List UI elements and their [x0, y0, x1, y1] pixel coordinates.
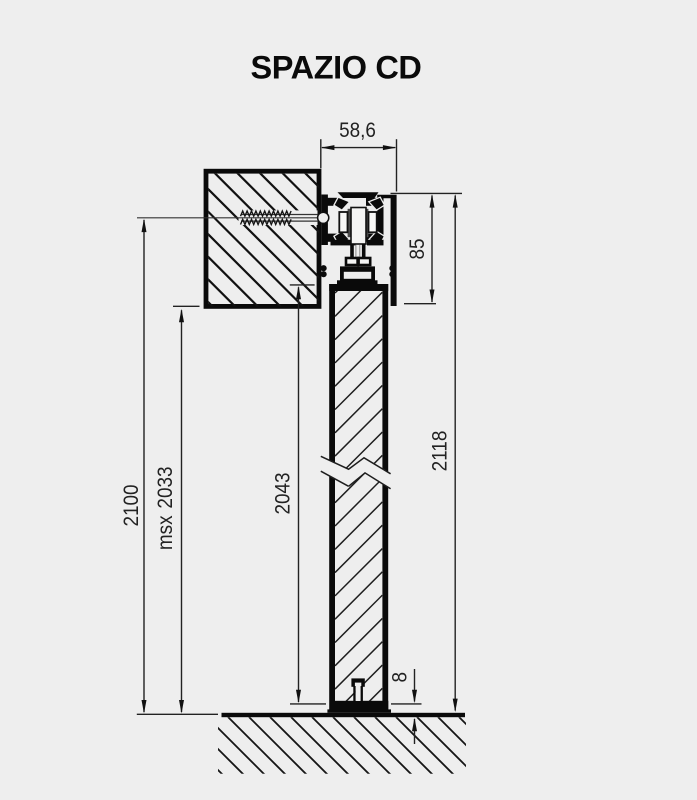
svg-text:8: 8 [388, 672, 411, 683]
svg-text:msx 2033: msx 2033 [154, 466, 177, 550]
svg-text:2100: 2100 [120, 484, 143, 526]
svg-text:85: 85 [406, 238, 429, 259]
svg-text:SPAZIO CD: SPAZIO CD [251, 50, 422, 86]
svg-text:2043: 2043 [272, 472, 295, 514]
svg-text:2118: 2118 [428, 431, 451, 472]
svg-text:58,6: 58,6 [339, 119, 376, 142]
